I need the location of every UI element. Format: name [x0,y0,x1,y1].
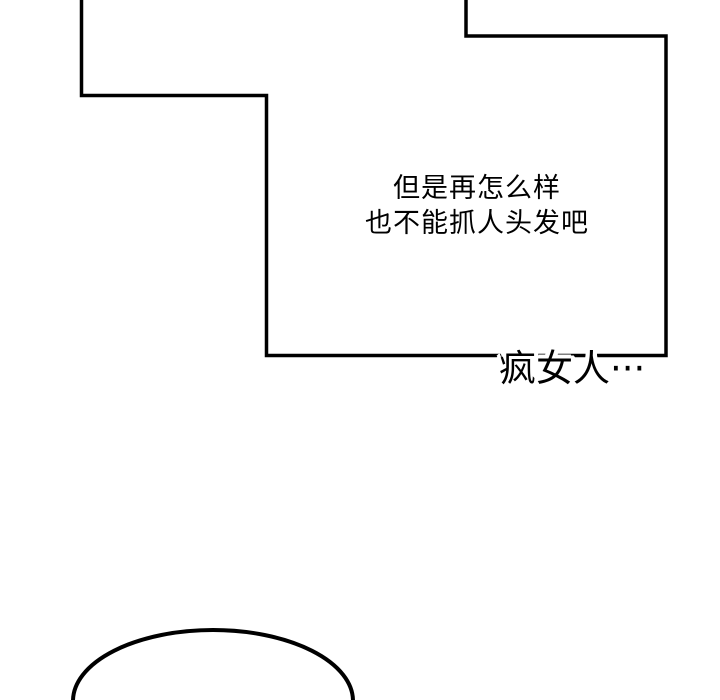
comic-page: 但是再怎么样 也不能抓人头发吧 疯女人··· [0,0,720,700]
handwritten-note: 疯女人··· [499,349,645,389]
dialogue-line-2: 也不能抓人头发吧 [365,206,589,241]
dialogue-line-1: 但是再怎么样 [365,171,589,206]
head-outline [73,630,353,700]
dialogue-text: 但是再怎么样 也不能抓人头发吧 [365,171,589,241]
